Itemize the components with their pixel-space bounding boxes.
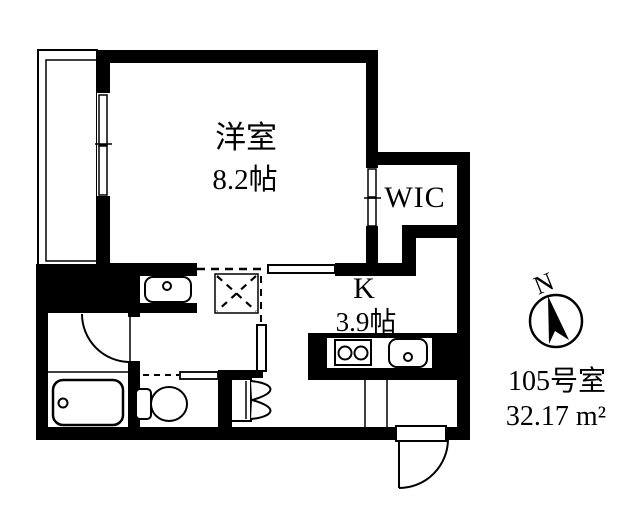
kitchen-size: 3.9帖	[336, 307, 397, 337]
folding-door-icon	[231, 379, 270, 421]
wic-sliding-door	[364, 168, 381, 226]
balcony	[38, 50, 97, 268]
room-kitchen-sliding-panel	[268, 265, 335, 273]
western-room-label: 洋室	[215, 120, 277, 155]
washing-machine-space-icon	[215, 274, 258, 313]
floor-plan-drawing: N 洋室 8.2帖 WIC K 3.9帖 105号室 32.17 m²	[0, 0, 640, 527]
western-room-size: 8.2帖	[212, 163, 277, 196]
kitchen-sink-icon	[389, 339, 427, 367]
unit-number: 105号室	[508, 365, 606, 397]
bath-door	[82, 314, 130, 362]
entrance-step	[365, 380, 387, 427]
sliding-window	[95, 93, 112, 196]
entrance-door-icon	[396, 426, 448, 488]
gas-stove-icon	[335, 340, 371, 365]
toilet-icon	[136, 387, 187, 421]
unit-area: 32.17 m²	[506, 401, 606, 432]
toilet-door	[143, 372, 218, 379]
bathtub-icon	[53, 380, 123, 425]
floor-plan: N 洋室 8.2帖 WIC K 3.9帖 105号室 32.17 m²	[0, 0, 640, 527]
kitchen-label: K	[353, 272, 375, 305]
compass-icon: N	[530, 266, 582, 347]
wic-label: WIC	[384, 181, 445, 214]
washbasin-icon	[145, 277, 191, 302]
